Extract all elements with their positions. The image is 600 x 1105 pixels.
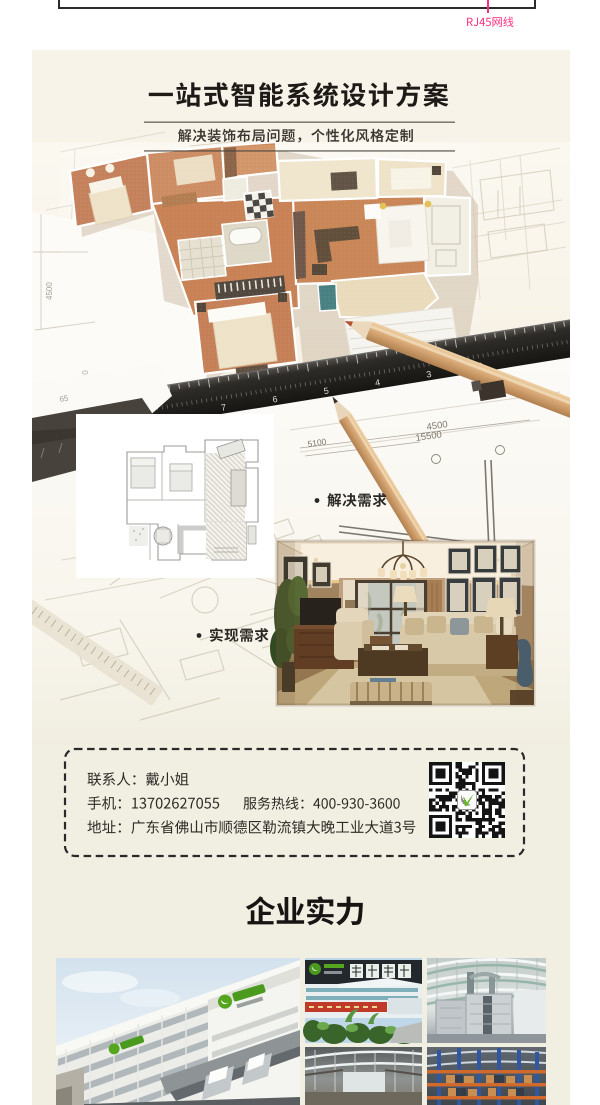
svg-text:4500: 4500 <box>45 282 54 300</box>
